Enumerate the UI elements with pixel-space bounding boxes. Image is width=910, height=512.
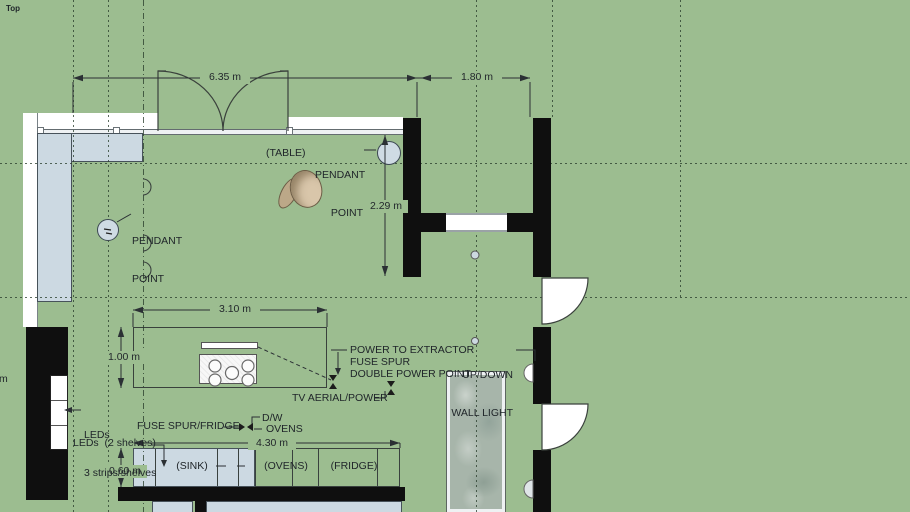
label-sink-unit[interactable]: (SINK) — [162, 460, 222, 473]
label-pendant-left[interactable]: PENDANT POINT — [132, 210, 182, 310]
shelf-divider — [51, 400, 67, 401]
dim-opening[interactable]: 1.80 m — [452, 71, 502, 84]
door-right-lower[interactable] — [542, 404, 588, 450]
pendant-light-table[interactable] — [377, 141, 401, 165]
window-frame-tick — [286, 127, 293, 135]
dim-island-length[interactable]: 3.10 m — [210, 303, 260, 316]
wall-bottom[interactable] — [118, 487, 405, 501]
cabinet-divider — [238, 449, 239, 486]
label-leds-shelves[interactable]: LEDs 3 strips/shelves — [84, 404, 156, 504]
label-fuse-spur-fridge[interactable]: FUSE SPUR/FRIDGE — [137, 420, 240, 433]
dim-table-clearance[interactable]: 2.29 m — [364, 200, 408, 213]
label-pendant-table[interactable]: PENDANT POINT — [315, 144, 363, 244]
dim-left-edge-partial: m — [0, 373, 8, 386]
dim-island-width[interactable]: 1.00 m — [102, 351, 146, 364]
wall-bottom-stub[interactable] — [195, 501, 206, 512]
worktop-below-right[interactable] — [206, 501, 402, 512]
dim-top-span[interactable]: 6.35 m — [200, 71, 250, 84]
label-table[interactable]: (TABLE) — [266, 147, 305, 160]
label-tv-aerial[interactable]: TV AERIAL/POWER — [292, 392, 388, 405]
dim-counter-run[interactable]: 4.30 m — [248, 437, 296, 450]
door-right-upper[interactable] — [542, 278, 588, 324]
label-fuse-spur[interactable]: FUSE SPUR — [350, 356, 410, 369]
floorplan-viewport[interactable]: Top 6.35 m 1.80 m 2.29 m 3.10 m 1.00 m 0… — [0, 0, 910, 512]
wall-cross-left[interactable] — [421, 213, 446, 232]
label-updown-wall-light[interactable]: UP/DOWN WALL LIGHT — [450, 344, 513, 444]
wall-left-window[interactable] — [23, 113, 38, 327]
wall-corridor-right-upper[interactable] — [533, 118, 551, 277]
worktop-below-left[interactable] — [152, 501, 193, 512]
label-leds-2-shelves[interactable]: LEDs (2 shelves) — [73, 437, 156, 450]
shelf-unit[interactable] — [50, 375, 68, 450]
view-label: Top — [6, 3, 20, 16]
corridor-window[interactable] — [446, 213, 507, 232]
wall-right-mid[interactable] — [533, 327, 551, 404]
pendant-light-left[interactable] — [97, 219, 119, 241]
cabinet-divider — [318, 449, 319, 486]
wall-cross-right[interactable] — [507, 213, 533, 232]
label-ovens-power[interactable]: OVENS — [266, 423, 303, 436]
label-fridge-unit[interactable]: (FRIDGE) — [324, 460, 384, 473]
hob[interactable] — [199, 354, 257, 384]
wall-right-lower[interactable] — [533, 450, 551, 512]
label-ovens-unit[interactable]: (OVENS) — [256, 460, 316, 473]
extractor-hood[interactable] — [201, 342, 258, 349]
counter-left-run[interactable] — [37, 133, 72, 302]
wall-corridor-left[interactable] — [403, 118, 421, 277]
shelf-divider — [51, 425, 67, 426]
